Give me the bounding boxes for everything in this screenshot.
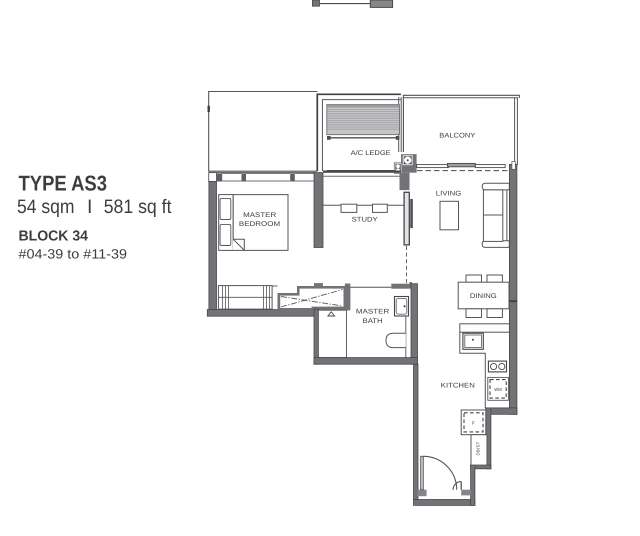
svg-text:BLOCK 34: BLOCK 34: [19, 229, 89, 245]
svg-text:LIVING: LIVING: [436, 191, 462, 198]
svg-text:BEDROOM: BEDROOM: [239, 221, 281, 228]
svg-text:STUDY: STUDY: [352, 217, 379, 224]
svg-text:F: F: [472, 421, 475, 426]
svg-text:DB/ST: DB/ST: [476, 441, 481, 455]
svg-text:MASTER: MASTER: [243, 212, 276, 219]
svg-text:54 sqm: 54 sqm: [17, 196, 75, 218]
svg-text:581 sq ft: 581 sq ft: [104, 196, 172, 218]
svg-text:KITCHEN: KITCHEN: [441, 383, 475, 390]
svg-text:MASTER: MASTER: [356, 309, 390, 316]
svg-text:BALCONY: BALCONY: [439, 132, 476, 139]
svg-text:DINING: DINING: [470, 293, 497, 300]
svg-text:WM: WM: [494, 387, 502, 392]
svg-text:#04-39 to #11-39: #04-39 to #11-39: [19, 247, 128, 262]
svg-text:BATH: BATH: [363, 318, 383, 325]
svg-text:A/C LEDGE: A/C LEDGE: [351, 150, 392, 157]
svg-text:TYPE AS3: TYPE AS3: [19, 172, 108, 196]
svg-text:I: I: [87, 196, 92, 218]
